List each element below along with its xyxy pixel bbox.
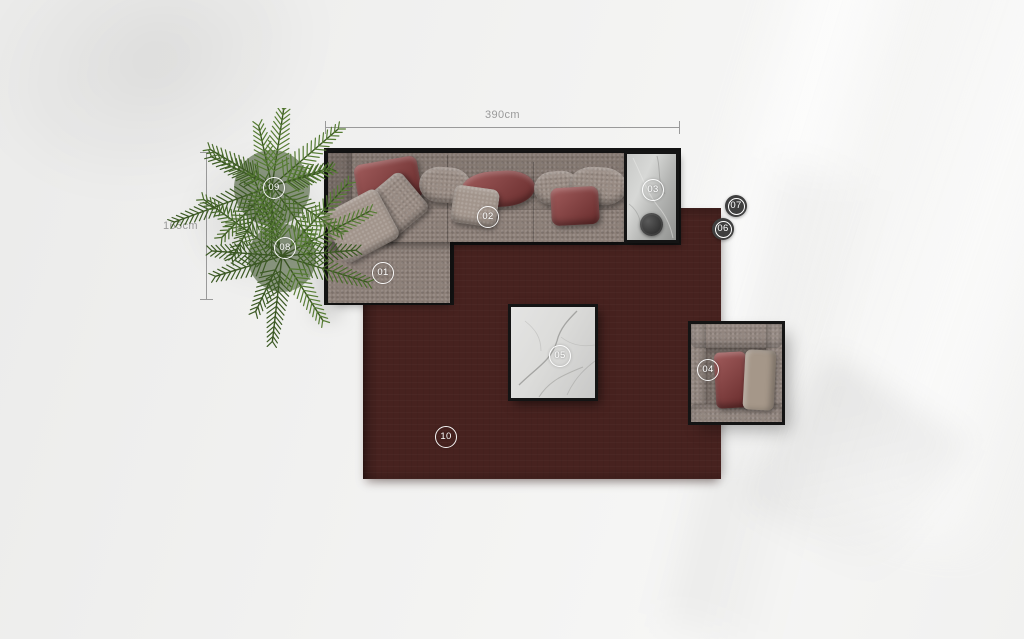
marker-05[interactable]: 05 [549,345,571,367]
marker-number: 02 [482,212,493,222]
potted-palm-plant [148,108,388,353]
marker-number: 08 [279,243,290,253]
marker-01[interactable]: 01 [372,262,394,284]
marker-number: 03 [647,185,658,195]
marker-number: 10 [440,432,451,442]
marker-06[interactable]: 06 [712,218,734,240]
beige-pillow [742,349,776,411]
width-dimension-tick [679,121,680,134]
scene-top-view: 390cm 165cm [0,0,1024,639]
marker-number: 06 [717,224,728,234]
marker-10[interactable]: 10 [435,426,457,448]
marker-number: 07 [730,201,741,211]
decor-bowl [640,213,663,236]
marker-number: 05 [554,351,565,361]
marker-number: 04 [702,365,713,375]
marker-08[interactable]: 08 [274,237,296,259]
red-pillow [550,186,600,226]
marker-09[interactable]: 09 [263,177,285,199]
marker-03[interactable]: 03 [642,179,664,201]
marker-02[interactable]: 02 [477,206,499,228]
marker-number: 01 [377,268,388,278]
sofa-seat-seam [533,162,534,242]
window-light-streak [766,0,1024,562]
marker-number: 09 [268,183,279,193]
marker-04[interactable]: 04 [697,359,719,381]
marker-07[interactable]: 07 [725,195,747,217]
